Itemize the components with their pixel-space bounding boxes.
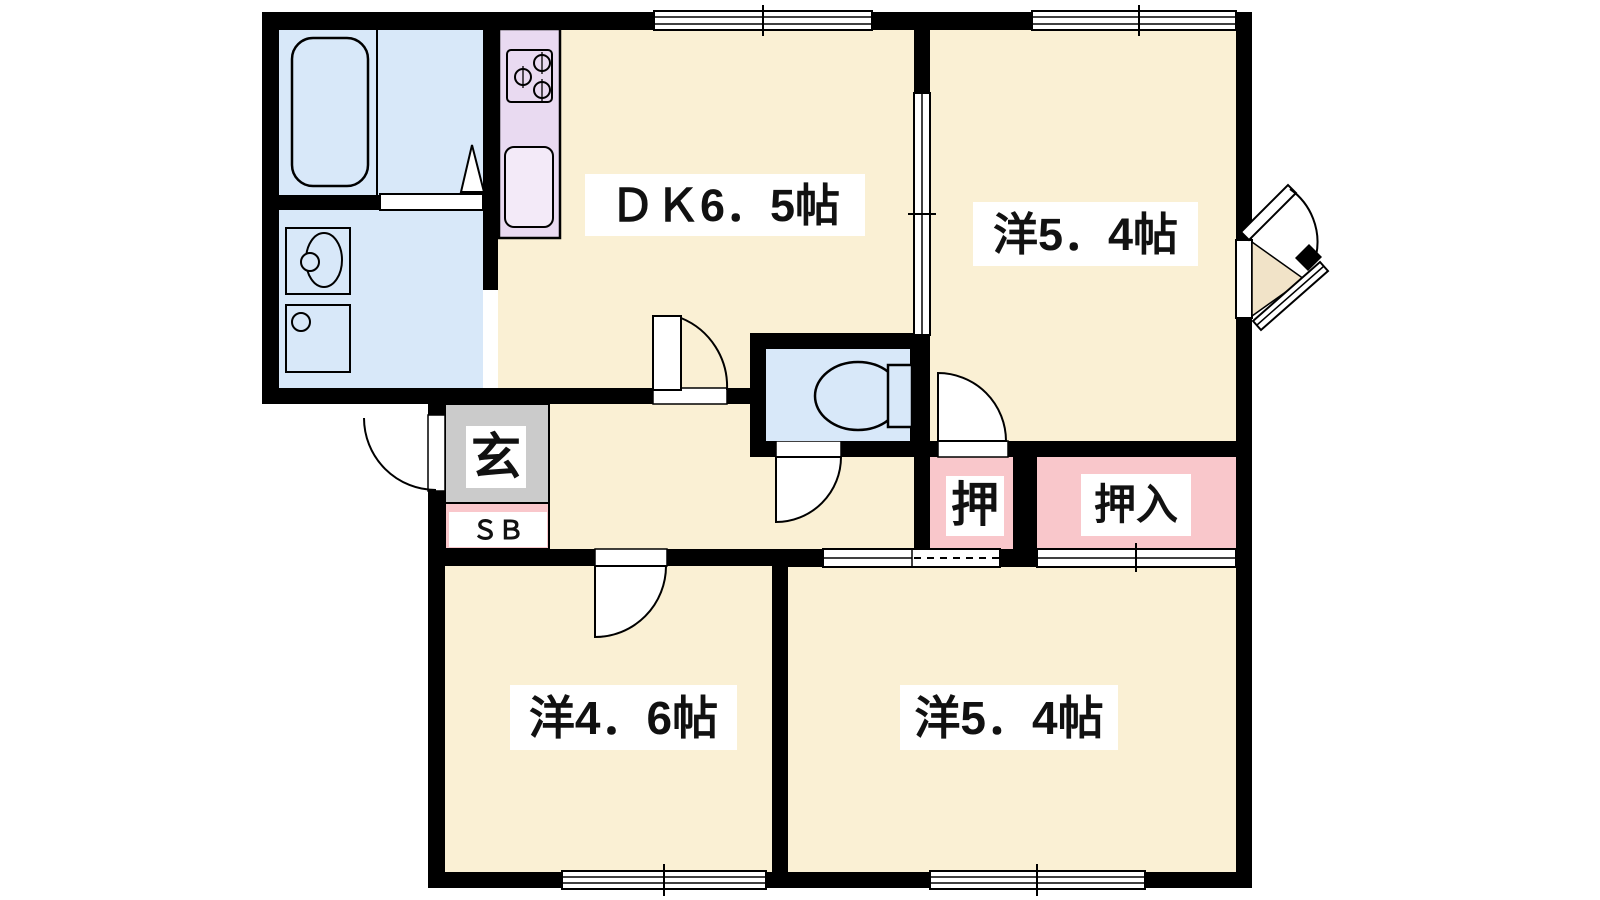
angled-door-swing	[1290, 189, 1318, 256]
entrance-door	[364, 415, 445, 491]
wall-bath-divider	[279, 195, 380, 210]
wall-hall-south-a	[428, 549, 595, 566]
wall-slider-b	[1000, 549, 1037, 567]
wall-hall-south-b	[667, 549, 780, 566]
washroom-opening	[483, 290, 498, 388]
wall-left	[262, 12, 279, 404]
floor-plan-drawing	[0, 0, 1600, 900]
label-entrance: 玄	[466, 426, 526, 488]
slider-hall-bottom-right-room	[823, 549, 1000, 567]
kitchen-sink-icon	[505, 147, 553, 227]
label-western-bottom-right: 洋5．4帖	[900, 685, 1118, 750]
label-shoe-box: ＳＢ	[449, 512, 547, 547]
wall-bottomleft-room-left	[428, 566, 445, 888]
bathtub-icon	[292, 29, 377, 195]
label-dk: ＤＫ6．5帖	[585, 174, 865, 236]
wall-dk-room-divider-upper	[914, 29, 930, 93]
wall-right	[1236, 12, 1252, 888]
wall-washblock-south	[262, 388, 653, 404]
wall-bottom-rooms-divider	[772, 566, 788, 872]
wall-toilet-left	[750, 333, 766, 457]
label-closet-small: 押	[946, 476, 1004, 536]
floor-plan: ＤＫ6．5帖 洋5．4帖 洋4．6帖 洋5．4帖 玄 ＳＢ 押 押入	[0, 0, 1600, 900]
wall-slider-a	[780, 549, 823, 567]
wall-toilet-top	[750, 333, 926, 349]
toilet-icon	[815, 362, 912, 430]
washbasin-icon	[286, 228, 350, 294]
label-closet-large: 押入	[1081, 474, 1191, 536]
label-western-top-right: 洋5．4帖	[973, 202, 1198, 266]
toilet-room	[766, 349, 912, 441]
label-western-bottom-left: 洋4．6帖	[510, 685, 737, 750]
washing-machine-icon	[286, 305, 350, 372]
